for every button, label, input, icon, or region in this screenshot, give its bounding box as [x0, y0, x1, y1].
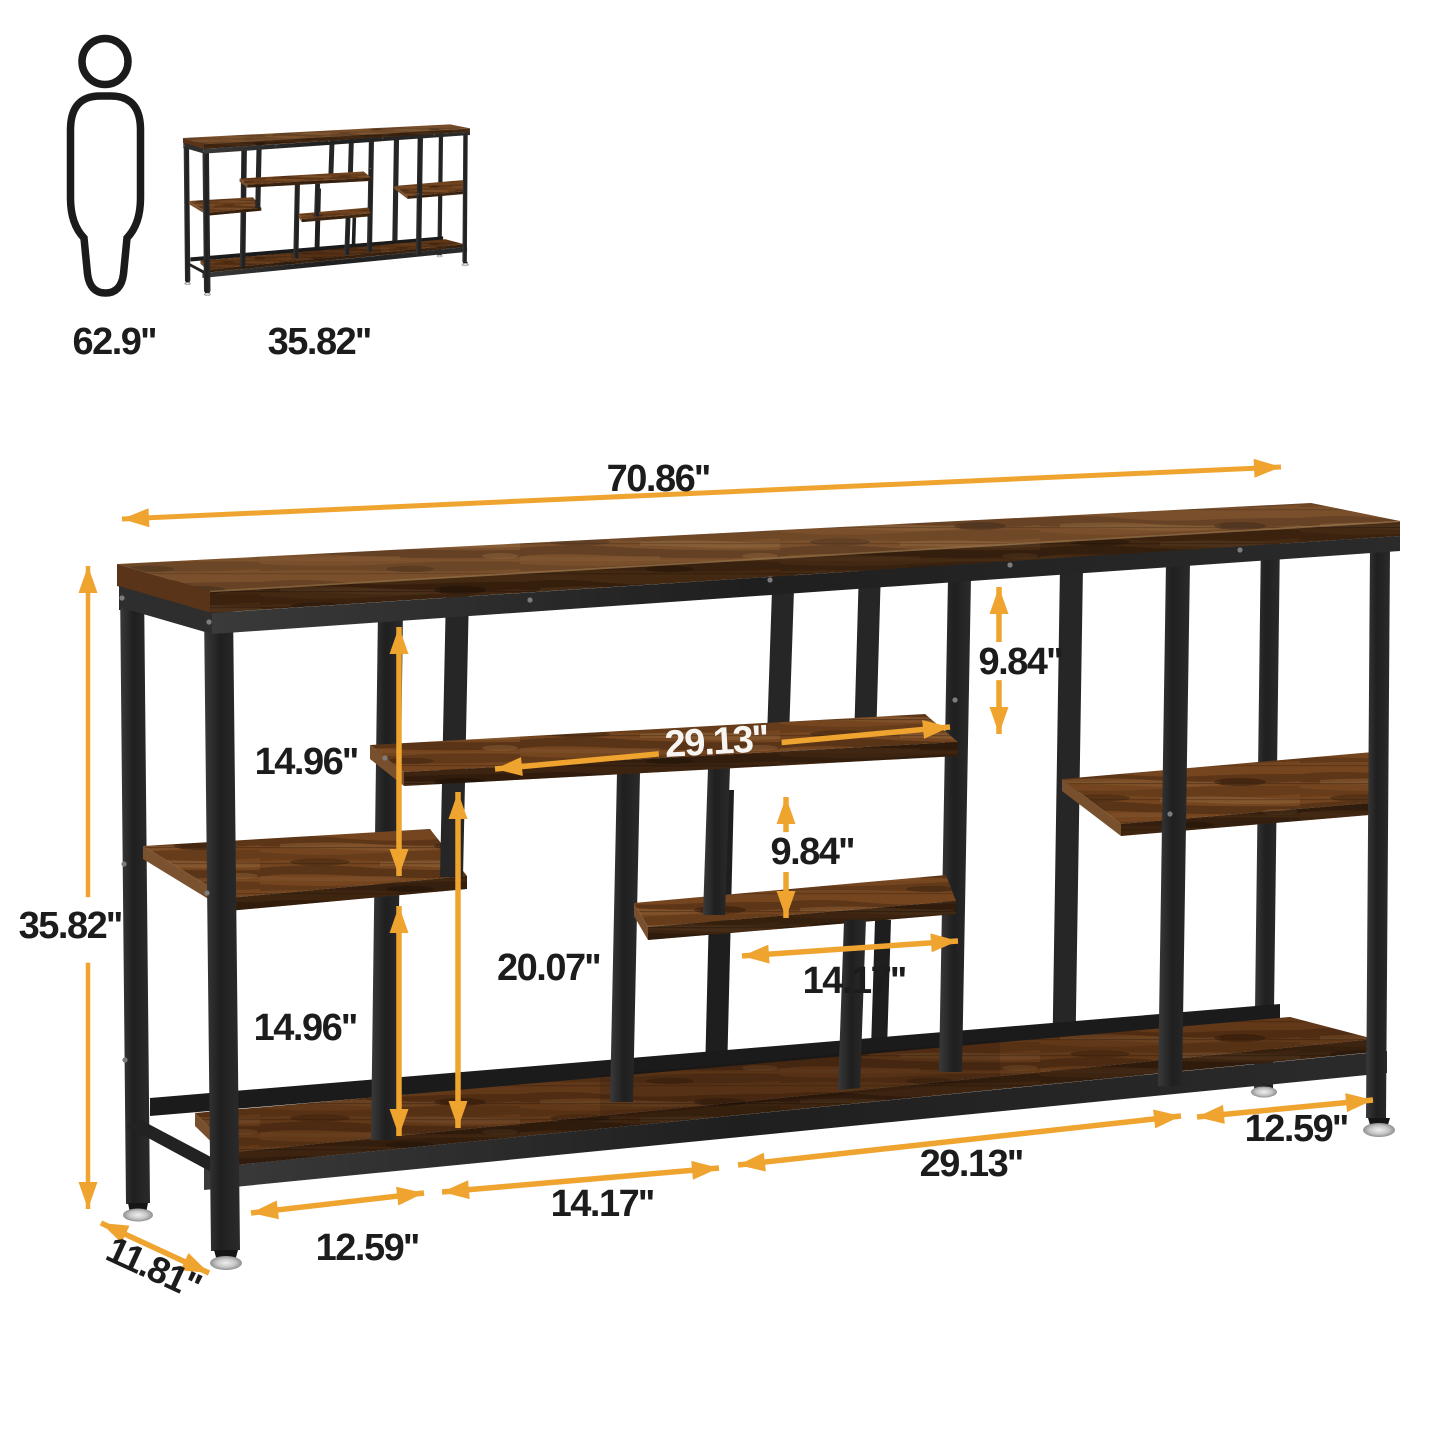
- svg-text:14.17'': 14.17'': [803, 960, 906, 1002]
- svg-text:14.17'': 14.17'': [551, 1183, 654, 1225]
- svg-text:35.82'': 35.82'': [268, 321, 371, 363]
- svg-text:29.13'': 29.13'': [664, 718, 769, 766]
- svg-text:70.86'': 70.86'': [607, 458, 710, 500]
- svg-text:12.59'': 12.59'': [316, 1227, 419, 1269]
- svg-text:14.96'': 14.96'': [255, 741, 358, 783]
- svg-text:29.13'': 29.13'': [920, 1143, 1023, 1185]
- svg-text:9.84'': 9.84'': [978, 641, 1061, 683]
- svg-text:12.59'': 12.59'': [1245, 1108, 1348, 1150]
- svg-text:35.82'': 35.82'': [19, 905, 122, 947]
- svg-text:62.9'': 62.9'': [72, 321, 155, 363]
- svg-text:20.07'': 20.07'': [497, 947, 600, 989]
- svg-text:14.96'': 14.96'': [254, 1007, 357, 1049]
- svg-text:9.84'': 9.84'': [770, 831, 853, 873]
